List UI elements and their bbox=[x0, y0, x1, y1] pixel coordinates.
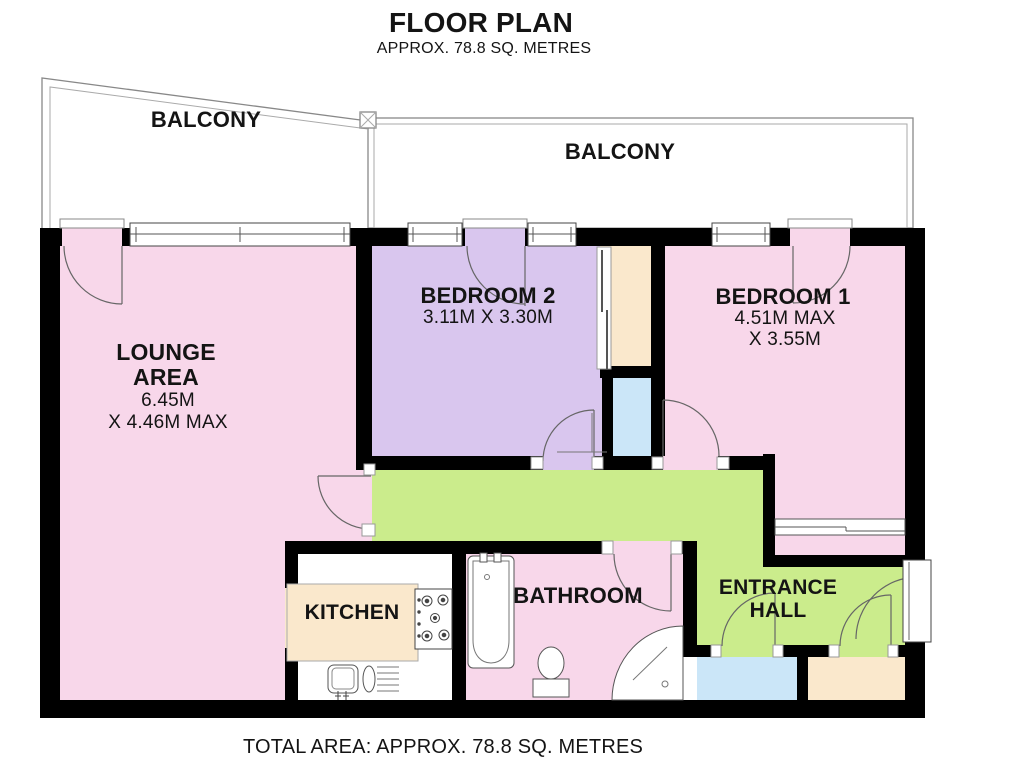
bedroom2-dims: 3.11M X 3.30M bbox=[423, 308, 553, 328]
bedroom2-door-threshold bbox=[463, 219, 527, 228]
floor-plan-page: FLOOR PLAN APPROX. 78.8 SQ. METRES BALCO… bbox=[0, 0, 1024, 766]
bedroom1-dims-line1: 4.51M MAX bbox=[734, 309, 835, 329]
bedroom1-door-threshold bbox=[788, 219, 852, 228]
kitchen-label: KITCHEN bbox=[305, 602, 400, 624]
closet-left-door-gap bbox=[718, 645, 775, 657]
bedroom2-closet-sliding-door bbox=[597, 247, 611, 369]
bathroom-door-gap bbox=[613, 541, 671, 554]
total-area-label: TOTAL AREA: APPROX. 78.8 SQ. METRES bbox=[243, 737, 643, 758]
wall-airing-cupboard-left bbox=[602, 378, 613, 468]
bedroom2-label: BEDROOM 2 bbox=[420, 284, 555, 307]
bathroom-label: BATHROOM bbox=[513, 584, 643, 607]
wall-bottom bbox=[40, 700, 925, 718]
balcony-left-outline bbox=[42, 78, 368, 228]
lounge-dims-line1: 6.45M bbox=[141, 391, 195, 411]
closet-right-door-gap bbox=[836, 645, 893, 657]
bedroom2-balcony-door-gap bbox=[465, 228, 525, 246]
hall-closet-cream-floor bbox=[808, 653, 907, 700]
airing-cupboard-floor bbox=[611, 378, 651, 466]
balcony-right-label: BALCONY bbox=[565, 140, 675, 163]
bedroom2-window-1 bbox=[408, 223, 462, 246]
wall-left bbox=[40, 228, 60, 718]
wall-right-lower bbox=[905, 638, 925, 718]
bedroom1-dims-line2: X 3.55M bbox=[749, 330, 821, 350]
wall-kitchen-left-upper bbox=[285, 541, 298, 588]
bedroom1-balcony-door-gap bbox=[790, 228, 850, 246]
bedroom2-door-gap bbox=[543, 456, 594, 470]
kitchen-stove bbox=[415, 589, 452, 649]
page-title: FLOOR PLAN bbox=[389, 8, 573, 37]
bedroom1-window bbox=[712, 223, 770, 246]
bedroom1-wardrobe bbox=[775, 519, 905, 535]
front-door bbox=[903, 560, 931, 642]
wall-closet-divider-br bbox=[797, 645, 808, 700]
bathtub bbox=[468, 553, 514, 668]
front-door-leaf bbox=[903, 560, 931, 642]
lounge-label-line1: LOUNGE bbox=[116, 340, 216, 364]
wall-corridor-top-a bbox=[356, 456, 543, 470]
lounge-dims-line2: X 4.46M MAX bbox=[108, 413, 227, 433]
wall-corridor-bottom-a bbox=[285, 541, 613, 554]
wall-bedroom1-corner-v bbox=[763, 454, 775, 567]
wall-bathroom-right bbox=[683, 541, 697, 657]
balcony-left-label: BALCONY bbox=[151, 108, 261, 131]
bedroom1-label: BEDROOM 1 bbox=[715, 285, 850, 308]
wall-right-upper bbox=[905, 228, 925, 565]
entrance-hall-label-line1: ENTRANCE bbox=[719, 577, 837, 599]
windows bbox=[60, 219, 852, 246]
entrance-hall-floor-left bbox=[690, 462, 775, 652]
hall-closet-blue-floor bbox=[697, 653, 797, 700]
balcony-right-outline bbox=[368, 118, 913, 228]
entrance-hall-label-line2: HALL bbox=[750, 600, 807, 622]
balconies bbox=[42, 78, 913, 228]
lounge-window bbox=[130, 223, 350, 246]
wall-lounge-bedroom2 bbox=[356, 246, 372, 456]
lounge-door-threshold bbox=[60, 219, 124, 228]
bedroom2-window-2 bbox=[528, 223, 576, 246]
page-subtitle: APPROX. 78.8 SQ. METRES bbox=[377, 41, 591, 58]
wall-kitchen-bathroom bbox=[452, 541, 466, 700]
bedroom1-door-gap bbox=[663, 456, 718, 470]
wall-bedroom1-bottom bbox=[763, 555, 907, 567]
lounge-balcony-door-gap bbox=[62, 228, 122, 246]
lounge-label-line2: AREA bbox=[133, 365, 199, 389]
